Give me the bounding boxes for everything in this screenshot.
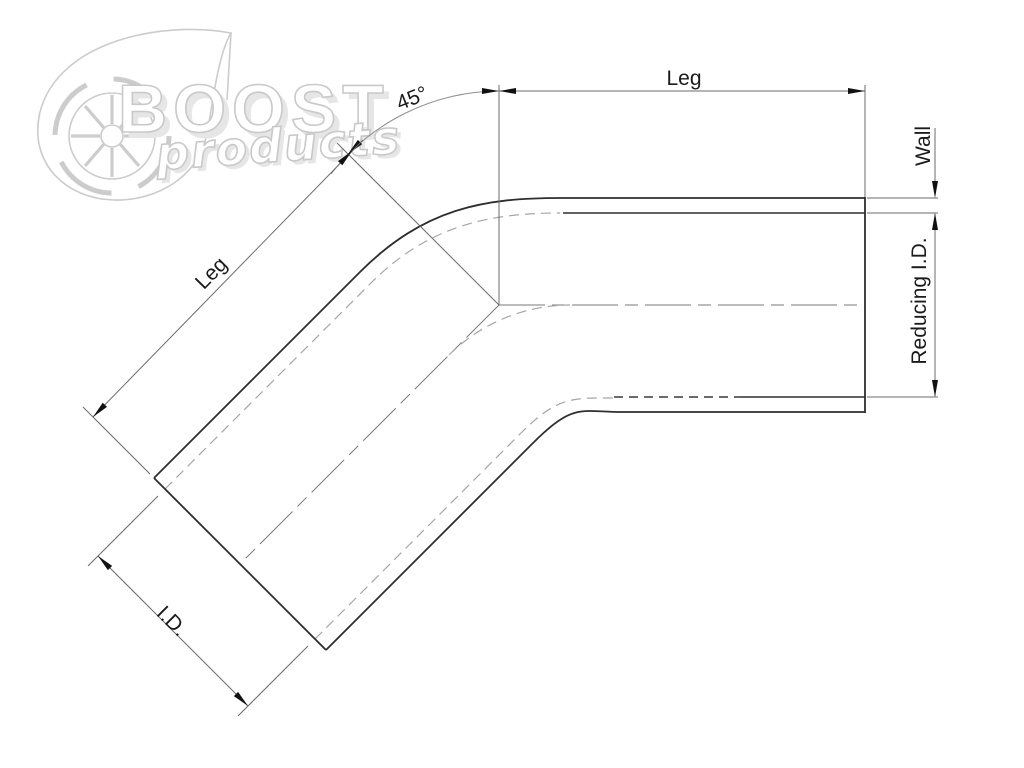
pipe-inner-bottom-hidden (315, 398, 613, 639)
extension-line-vertex-diagonal (337, 143, 499, 305)
wall-label: Wall (912, 126, 935, 166)
extension-line-left-cap (83, 407, 150, 474)
arrowhead (932, 181, 938, 198)
pipe-inner-top-hidden (165, 213, 560, 489)
pipe-outer-bottom (326, 411, 865, 650)
leg-diagonal-label: Leg (191, 253, 232, 294)
arrowhead (932, 213, 938, 230)
pipe-outline (154, 197, 865, 650)
brand-logo: BOOST BOOST products products (38, 29, 407, 200)
centerline-diagonal (241, 305, 499, 563)
arrowhead (848, 88, 865, 94)
arrowhead (96, 554, 112, 570)
reducing-id-label: Reducing I.D. (908, 237, 931, 364)
arrowhead (91, 403, 107, 419)
arrowhead (234, 692, 250, 708)
technical-drawing-canvas: BOOST BOOST products products (0, 0, 1024, 768)
dimension-line-leg-diagonal (93, 140, 363, 417)
arrowhead (932, 380, 938, 397)
extension-line-id-lower (238, 646, 308, 716)
extension-line-id-upper (88, 496, 158, 566)
angle-label: 45° (393, 82, 431, 115)
centerlines (241, 305, 863, 563)
leg-top-label: Leg (666, 67, 701, 90)
arrowhead (499, 88, 516, 94)
centerline-bend-arc (449, 305, 570, 355)
pipe-outer-top (154, 198, 865, 478)
elbow-dimension-drawing: BOOST BOOST products products (0, 0, 1024, 768)
inner-diameter-label: I.D. (152, 602, 191, 641)
arrowhead (482, 88, 499, 94)
